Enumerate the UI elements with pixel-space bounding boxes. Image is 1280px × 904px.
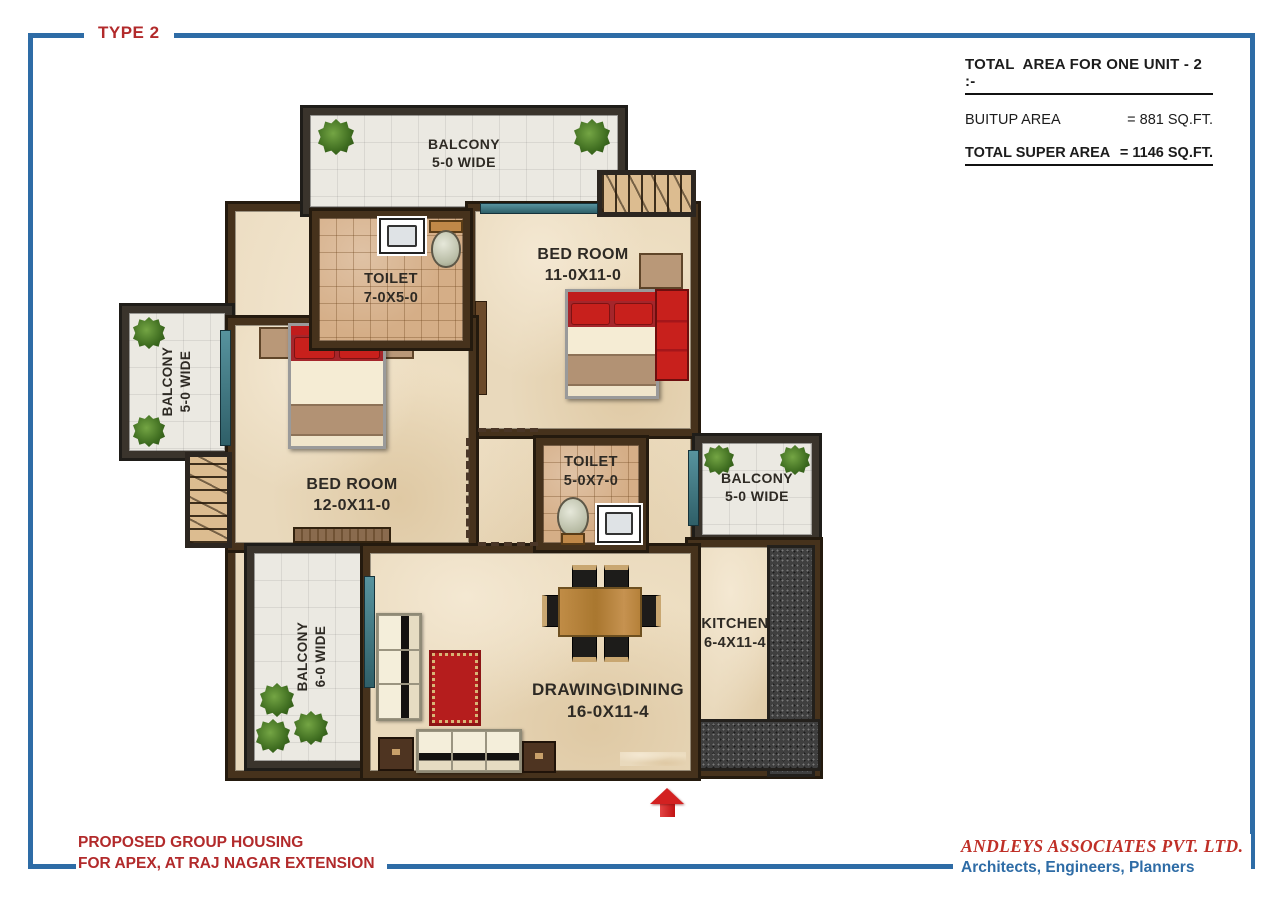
door-opening-dashed — [478, 542, 538, 546]
wash-basin-icon — [379, 218, 425, 254]
wc-toilet-icon — [431, 230, 461, 268]
room-label: KITCHEN6-4X11-4 — [695, 615, 775, 653]
builtup-area-row: BUITUP AREA = 881 SQ.FT. — [965, 112, 1213, 128]
super-area-label: TOTAL SUPER AREA — [965, 145, 1110, 161]
door-opening-dashed — [478, 428, 538, 432]
room-label: BALCONY5-0 WIDE — [159, 347, 194, 417]
side-table — [639, 253, 683, 289]
side-table — [259, 327, 291, 359]
room-balcony-top: BALCONY5-0 WIDE — [303, 108, 625, 214]
window — [364, 576, 375, 688]
area-summary-title: TOTAL AREA FOR ONE UNIT - 2 :- — [965, 56, 1213, 95]
door-leaf — [475, 301, 487, 395]
super-area-row: TOTAL SUPER AREA = 1146 SQ.FT. — [965, 145, 1213, 166]
window — [480, 203, 598, 214]
room-bedroom-1: BED ROOM11-0X11-0 — [468, 204, 698, 436]
couch — [655, 289, 689, 381]
company-name: ANDLEYS ASSOCIATES PVT. LTD. — [961, 836, 1243, 857]
rug — [432, 653, 478, 723]
project-title: PROPOSED GROUP HOUSING FOR APEX, AT RAJ … — [76, 831, 387, 877]
sofa — [376, 613, 422, 721]
room-toilet-2: TOILET5-0X7-0 — [536, 438, 646, 550]
plan-type-title: TYPE 2 — [84, 23, 174, 43]
builtup-area-label: BUITUP AREA — [965, 112, 1061, 128]
architect-signature: ANDLEYS ASSOCIATES PVT. LTD. Architects,… — [953, 834, 1251, 879]
door-opening-dashed — [466, 438, 470, 538]
builtup-area-value: = 881 SQ.FT. — [1127, 112, 1213, 128]
entrance-arrow-icon — [650, 788, 684, 817]
side-table — [522, 741, 556, 773]
room-bedroom-2: BED ROOM12-0X11-0 — [228, 318, 476, 550]
wc-toilet-icon — [557, 497, 589, 537]
dresser — [293, 527, 391, 543]
super-area-value: = 1146 SQ.FT. — [1120, 145, 1213, 161]
room-label: TOILET7-0X5-0 — [319, 270, 463, 308]
room-balcony-right: BALCONY5-0 WIDE — [695, 436, 819, 542]
side-table — [378, 737, 414, 771]
dining-table — [558, 587, 642, 637]
entrance-opening — [620, 752, 686, 766]
room-label: BALCONY6-0 WIDE — [294, 622, 329, 692]
wc-base — [561, 533, 585, 545]
wardrobe — [597, 170, 696, 217]
sofa — [416, 729, 522, 773]
area-summary: TOTAL AREA FOR ONE UNIT - 2 :- BUITUP AR… — [965, 56, 1213, 166]
room-balcony-bottom: BALCONY6-0 WIDE — [247, 546, 377, 768]
room-label: TOILET5-0X7-0 — [543, 453, 639, 491]
window — [220, 330, 231, 446]
double-bed — [565, 289, 659, 399]
room-balcony-left: BALCONY5-0 WIDE — [122, 306, 232, 458]
project-title-line2: FOR APEX, AT RAJ NAGAR EXTENSION — [78, 854, 375, 875]
company-tagline: Architects, Engineers, Planners — [961, 859, 1243, 877]
room-toilet-1: TOILET7-0X5-0 — [312, 211, 470, 348]
wash-basin-icon — [597, 505, 641, 543]
project-title-line1: PROPOSED GROUP HOUSING — [78, 833, 375, 854]
window — [688, 450, 699, 526]
wardrobe — [185, 452, 232, 548]
room-label: BALCONY5-0 WIDE — [310, 135, 618, 171]
room-drawing-dining: DRAWING\DINING16-0X11-4 — [363, 546, 698, 778]
room-kitchen: KITCHEN6-4X11-4 — [688, 540, 820, 776]
room-label: BED ROOM12-0X11-0 — [235, 475, 469, 517]
kitchen-counter — [693, 719, 821, 771]
room-label: DRAWING\DINING16-0X11-4 — [498, 679, 718, 723]
